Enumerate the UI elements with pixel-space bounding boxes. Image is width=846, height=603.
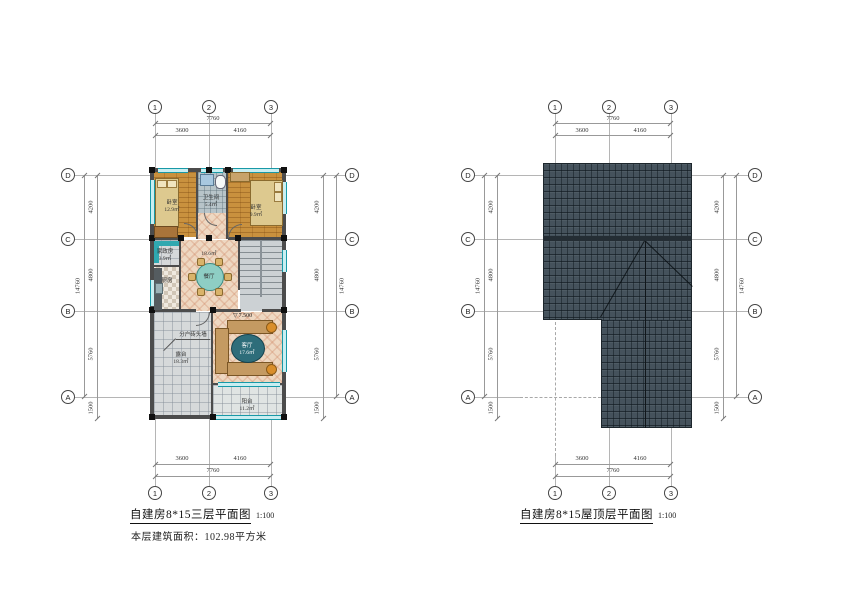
column-marker [206,167,212,173]
dim-line [723,175,724,419]
dim-line [97,175,98,419]
grid-bubble-rowA-right: A [748,390,762,404]
room-area: 11.2㎡ [240,404,255,412]
wall [196,172,198,239]
grid-bubble-rowB: B [461,304,475,318]
dim-line [555,135,671,136]
grid-bubble-rowC-right: C [748,232,762,246]
room-label: 餐厅 [203,272,214,280]
chair [188,273,196,281]
dim-line [484,175,485,397]
grid-line [671,428,672,487]
grid-line [286,239,346,240]
grid-line [75,397,150,398]
drawing-title: 自建房8*15三层平面图 [130,506,251,524]
dim-text: 4160 [634,455,647,462]
title-block-left: 自建房8*15三层平面图 1:100 [130,506,274,524]
grid-line [555,456,556,487]
dim-text: 4200 [88,201,95,214]
dim-text: 4800 [314,269,321,282]
side-table [266,364,277,375]
column-marker [210,414,216,420]
grid-line [286,311,346,312]
dim-text: 14760 [475,278,482,294]
column-marker [149,167,155,173]
wall [226,172,228,239]
column-marker [149,414,155,420]
grid-bubble-rowD-right: D [345,168,359,182]
grid-bubble-rowB-right: B [748,304,762,318]
column-marker [281,167,287,173]
dim-text: 5760 [314,348,321,361]
wall [179,240,181,311]
dim-line [555,476,671,477]
dim-text: 4200 [488,201,495,214]
grid-line [692,239,748,240]
chair [197,258,205,266]
wall [152,265,179,267]
drawing-title: 自建房8*15屋顶层平面图 [520,506,653,524]
grid-bubble-col1-bottom: 1 [148,486,162,500]
grid-bubble-rowD-right: D [748,168,762,182]
pillow [167,180,177,188]
grid-bubble-rowA: A [461,390,475,404]
dim-text: 7760 [607,115,620,122]
grid-line [75,311,150,312]
dim-text: 1500 [714,402,721,415]
dim-text: 1500 [88,402,95,415]
dim-line [555,123,671,124]
dim-text: 4800 [88,269,95,282]
window [218,382,280,387]
grid-bubble-rowC: C [461,232,475,246]
room-area: 3.9㎡ [159,254,171,262]
drawing-scale: 1:100 [658,511,676,520]
grid-line [271,419,272,487]
pillow [157,180,167,188]
dim-line [336,175,337,397]
dim-text: 4200 [714,201,721,214]
wall-note: 分户砖头墙 [179,330,207,338]
grid-line [609,428,610,487]
leader-line [176,339,210,340]
dim-text: 4160 [634,127,647,134]
level-marker: ▽ 7.500 [233,312,252,319]
room-area: 9.9㎡ [250,210,262,218]
roof-edge [601,427,692,428]
grid-line-dashed [555,322,556,456]
grid-bubble-col3: 3 [264,100,278,114]
dim-text: 4160 [234,455,247,462]
level-value: 7.500 [239,313,253,319]
grid-line [286,397,346,398]
roof-edge [691,163,692,428]
dim-line [323,175,324,419]
dim-line [555,464,671,465]
grid-bubble-col3-bottom: 3 [264,486,278,500]
dim-text: 14760 [339,278,346,294]
dim-text: 5760 [88,348,95,361]
roof-edge [543,163,544,320]
dim-line [155,135,271,136]
chair [215,258,223,266]
grid-bubble-col1-bottom: 1 [548,486,562,500]
grid-bubble-rowD: D [461,168,475,182]
window [282,330,287,372]
dim-line [155,464,271,465]
window [282,250,287,272]
roof-lower [601,320,692,428]
grid-bubble-rowD: D [61,168,75,182]
dim-text: 5760 [714,348,721,361]
grid-bubble-col2: 2 [602,100,616,114]
dim-line [497,175,498,419]
column-marker [281,414,287,420]
kitchen-sink [155,283,163,294]
dim-line [84,175,85,397]
dim-text: 1500 [314,402,321,415]
dim-text: 3600 [576,127,589,134]
window [201,168,223,173]
dim-text: 4800 [714,269,721,282]
dim-line [155,476,271,477]
grid-bubble-rowC: C [61,232,75,246]
dim-text: 14760 [75,278,82,294]
room-area: 18.3㎡ [173,357,188,365]
column-marker [281,235,287,241]
grid-line-dashed [520,397,601,398]
grid-line [692,175,748,176]
grid-line [692,311,748,312]
grid-bubble-col2-bottom: 2 [602,486,616,500]
grid-bubble-col2: 2 [202,100,216,114]
roof-upper [543,163,692,320]
drawing-sheet: 1 2 3 1 2 3 D C B A D C B A 7760 [0,0,846,603]
grid-bubble-rowB: B [61,304,75,318]
dim-text: 5760 [488,348,495,361]
dim-text: 3600 [176,455,189,462]
grid-line [75,175,150,176]
chair [197,288,205,296]
grid-bubble-rowB-right: B [345,304,359,318]
dim-text: 14760 [739,278,746,294]
grid-bubble-col1: 1 [148,100,162,114]
pillow [274,182,282,192]
grid-line [692,397,748,398]
grid-bubble-rowA: A [61,390,75,404]
wall [211,312,213,419]
grid-line [475,311,543,312]
room-area: 12.9㎡ [164,205,179,213]
room-area: 18.6㎡ [201,249,216,257]
toilet [215,175,226,189]
desk [230,172,250,182]
dim-text: 3600 [176,127,189,134]
room-area: 5.4㎡ [205,200,217,208]
dim-line [736,175,737,397]
grid-line [475,239,543,240]
grid-bubble-rowC-right: C [345,232,359,246]
dim-text: 7760 [207,467,220,474]
dim-line [155,123,271,124]
roof-ridge [543,236,692,241]
column-marker [235,235,241,241]
room-label: 厨房 [161,276,172,284]
dim-text: 4800 [488,269,495,282]
dim-text: 3600 [576,455,589,462]
title-block-right: 自建房8*15屋顶层平面图 1:100 [520,506,676,524]
wardrobe [154,226,178,238]
grid-bubble-col3-bottom: 3 [664,486,678,500]
level-triangle-icon: ▽ [233,312,238,319]
chair [215,288,223,296]
roof-edge [601,320,602,428]
column-marker [281,307,287,313]
stair-stringer [260,240,262,297]
column-marker [206,235,212,241]
chair [224,273,232,281]
drawing-scale: 1:100 [256,511,274,520]
side-table [266,322,277,333]
dim-text: 7760 [207,115,220,122]
pillow [274,192,282,202]
grid-bubble-col3: 3 [664,100,678,114]
grid-bubble-rowA-right: A [345,390,359,404]
grid-bubble-col1: 1 [548,100,562,114]
window [158,168,188,173]
grid-line [75,239,150,240]
shower-tray [200,174,214,186]
dim-text: 4200 [314,201,321,214]
balcony-railing [216,415,282,420]
roof-ridge-vertical [645,241,646,428]
grid-bubble-col2-bottom: 2 [202,486,216,500]
roof-edge [543,319,602,320]
dim-text: 1500 [488,402,495,415]
wall [238,240,240,290]
room-area: 17.6㎡ [239,348,254,356]
roof-edge [543,163,692,164]
dim-text: 7760 [607,467,620,474]
column-marker [210,307,216,313]
dim-text: 4160 [234,127,247,134]
area-note: 本层建筑面积：102.98平方米 [131,528,267,543]
